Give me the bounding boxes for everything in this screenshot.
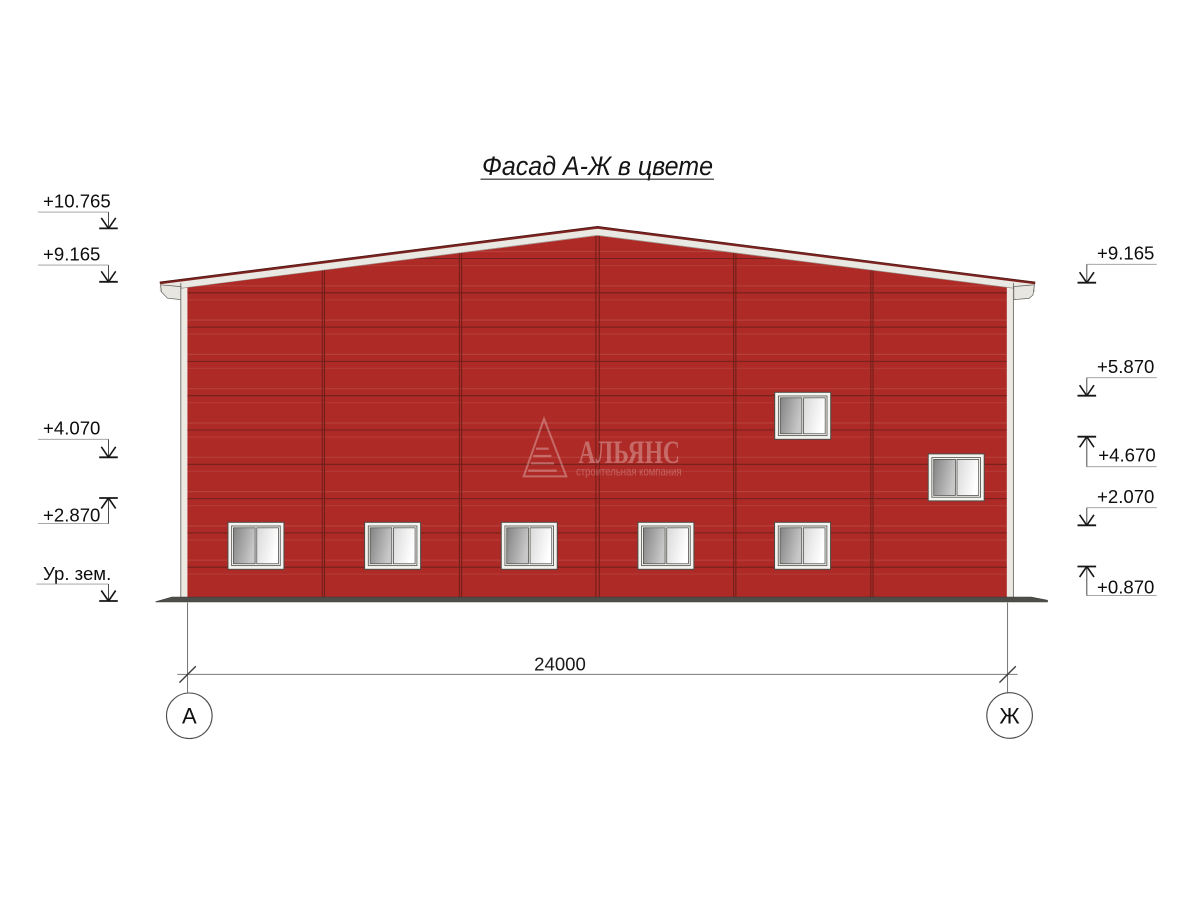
svg-text:Ур. зем.: Ур. зем. (43, 563, 111, 584)
svg-text:Ж: Ж (999, 703, 1020, 728)
svg-text:+4.670: +4.670 (1098, 445, 1155, 466)
svg-text:+2.070: +2.070 (1097, 486, 1154, 507)
svg-text:А: А (182, 704, 197, 729)
svg-text:24000: 24000 (534, 654, 586, 675)
svg-text:+9.165: +9.165 (43, 243, 100, 264)
svg-text:строительная компания: строительная компания (576, 465, 682, 479)
svg-text:+2.870: +2.870 (43, 505, 100, 526)
svg-text:+4.070: +4.070 (43, 418, 100, 439)
svg-text:+0.870: +0.870 (1097, 577, 1154, 598)
svg-text:+10.765: +10.765 (43, 190, 111, 211)
svg-text:+9.165: +9.165 (1097, 243, 1154, 264)
svg-text:+5.870: +5.870 (1097, 356, 1154, 377)
svg-text:Фасад А-Ж в цвете: Фасад А-Ж в цвете (482, 150, 713, 181)
